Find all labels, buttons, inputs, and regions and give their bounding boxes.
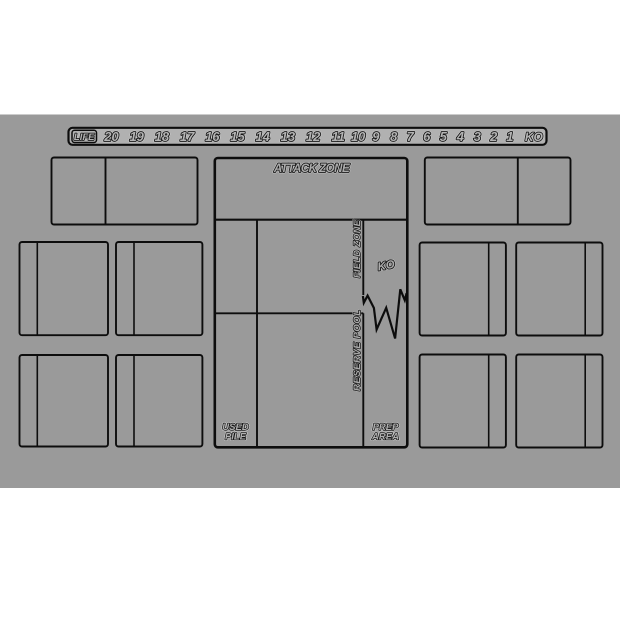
svg-text:14: 14 [255, 129, 270, 144]
svg-text:12: 12 [306, 129, 321, 144]
svg-text:KO: KO [525, 130, 544, 144]
svg-text:AREA: AREA [371, 432, 399, 443]
svg-text:11: 11 [332, 129, 346, 144]
svg-text:15: 15 [230, 129, 245, 144]
svg-text:18: 18 [155, 129, 170, 144]
svg-text:17: 17 [180, 129, 195, 144]
svg-text:ATTACK ZONE: ATTACK ZONE [273, 162, 351, 175]
svg-text:4: 4 [456, 129, 465, 144]
svg-text:3: 3 [474, 129, 482, 144]
svg-text:FIELD ZONE: FIELD ZONE [352, 219, 362, 278]
svg-text:1: 1 [506, 129, 513, 144]
svg-text:LIFE: LIFE [74, 132, 95, 143]
svg-text:19: 19 [129, 129, 144, 144]
svg-text:20: 20 [103, 129, 119, 144]
svg-text:8: 8 [390, 129, 398, 144]
svg-text:PILE: PILE [225, 432, 247, 443]
svg-text:13: 13 [281, 129, 296, 144]
svg-text:RESERVE POOL: RESERVE POOL [352, 309, 363, 391]
svg-text:10: 10 [351, 129, 366, 144]
svg-text:9: 9 [372, 129, 380, 144]
svg-text:5: 5 [440, 129, 448, 144]
svg-text:2: 2 [489, 129, 498, 144]
svg-text:7: 7 [407, 129, 415, 144]
svg-text:6: 6 [423, 129, 431, 144]
svg-text:16: 16 [205, 129, 220, 144]
